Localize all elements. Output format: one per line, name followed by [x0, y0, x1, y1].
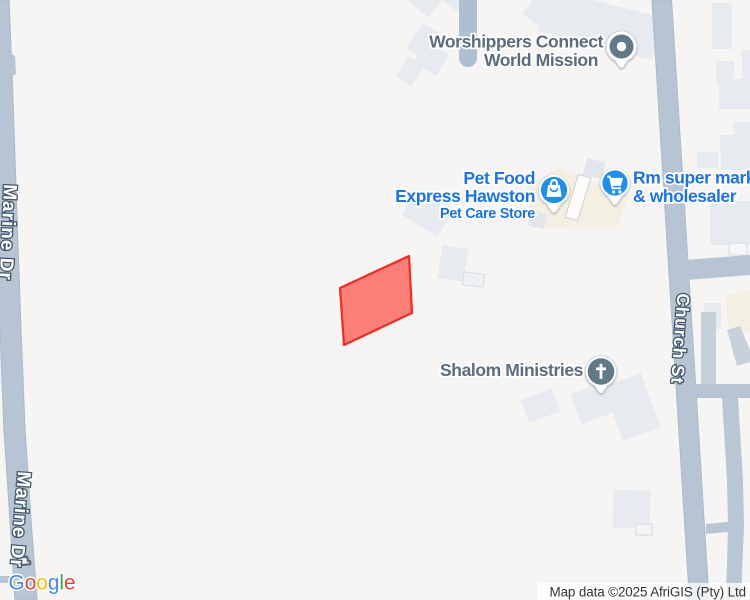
svg-text:Pet Care Store: Pet Care Store [440, 206, 535, 222]
svg-text:Shalom Ministries: Shalom Ministries [440, 360, 584, 380]
svg-text:Map data ©2025 AfriGIS (Pty) L: Map data ©2025 AfriGIS (Pty) Ltd [550, 585, 746, 600]
svg-text:Pet Food: Pet Food [463, 168, 535, 188]
svg-text:World Mission: World Mission [484, 50, 598, 70]
svg-text:& wholesaler: & wholesaler [633, 186, 737, 206]
svg-text:Google: Google [9, 572, 76, 595]
svg-text:Rm super marke: Rm super marke [633, 168, 750, 188]
svg-text:Express Hawston: Express Hawston [395, 186, 535, 206]
svg-text:Worshippers Connect: Worshippers Connect [429, 32, 603, 52]
svg-text:Marine Dr: Marine Dr [0, 184, 20, 281]
